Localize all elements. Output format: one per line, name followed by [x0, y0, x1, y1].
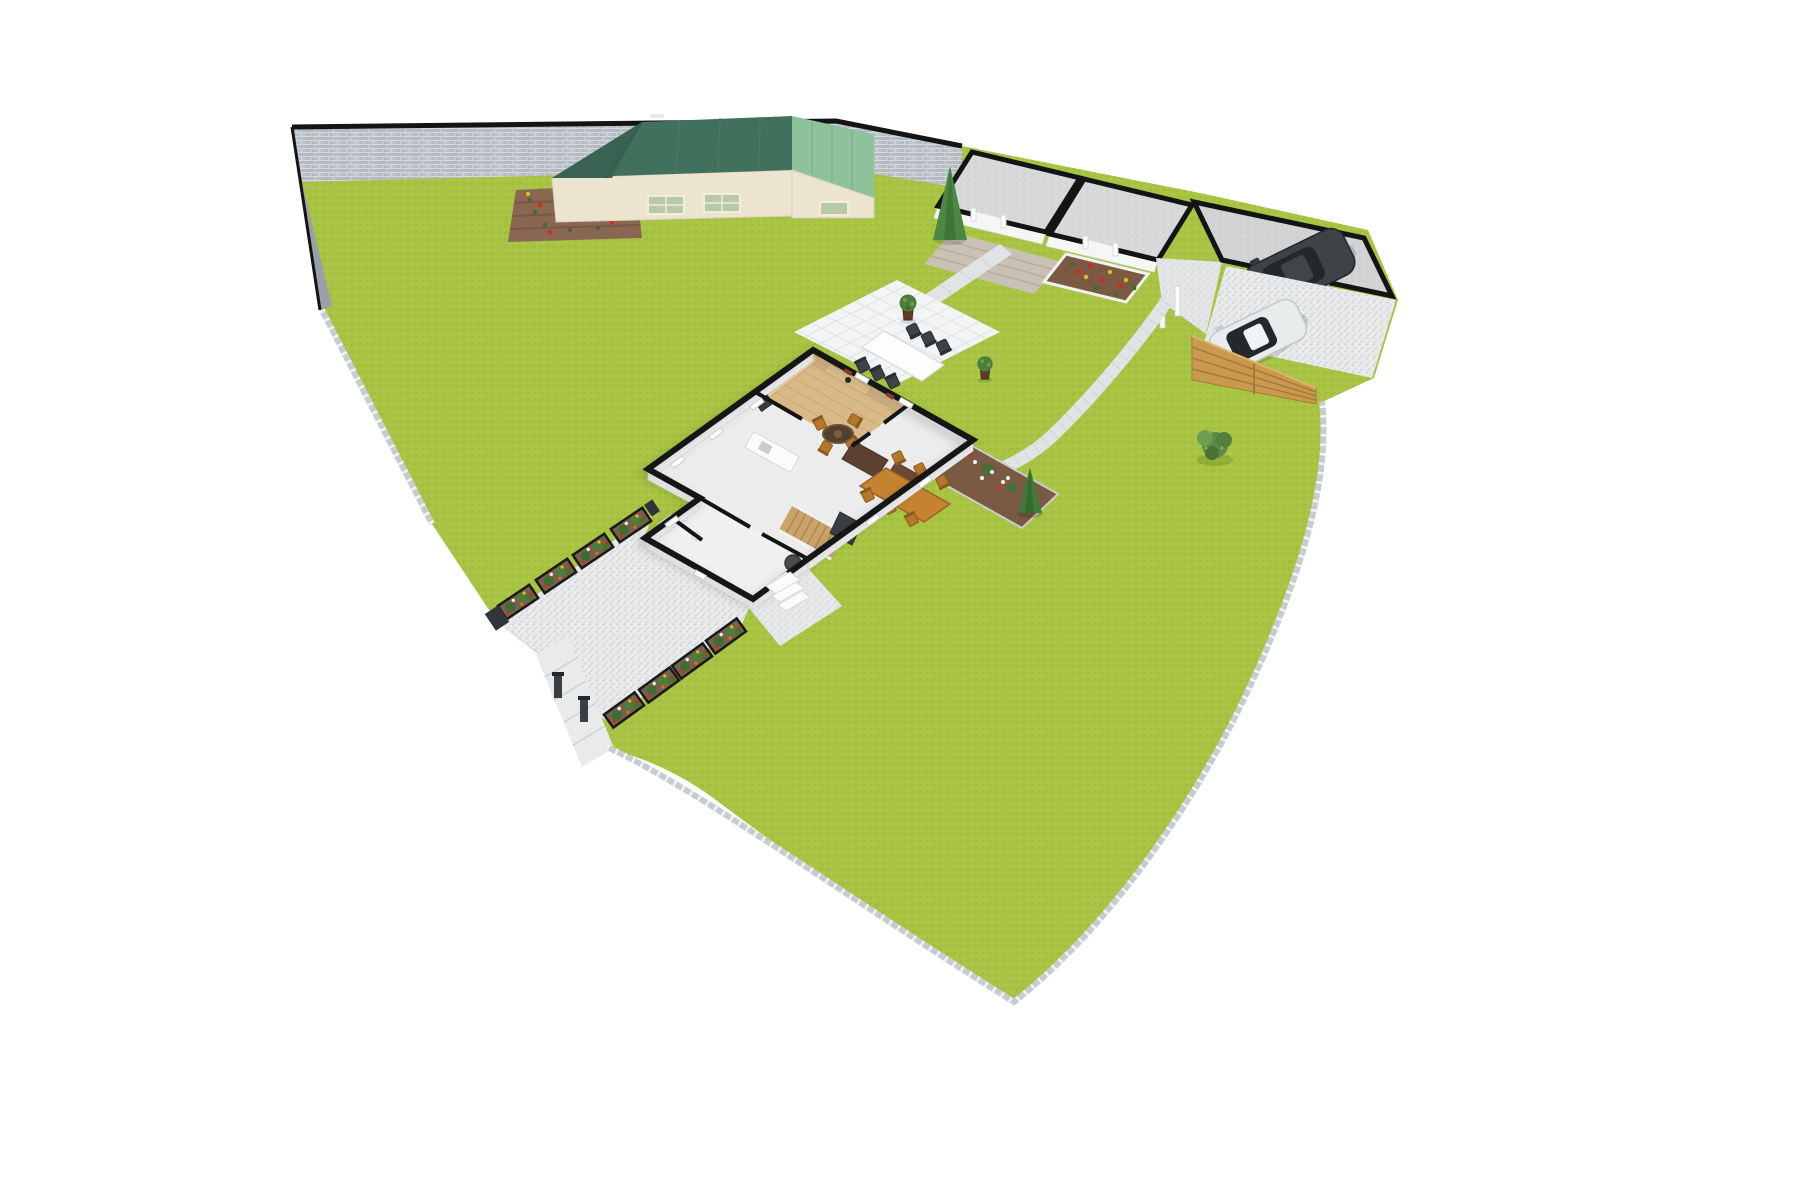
- shed-annex-window: [820, 202, 848, 215]
- site-plan: [0, 0, 1806, 1200]
- screenshot: [0, 0, 1806, 1200]
- garden-bush: [1197, 430, 1233, 466]
- shed-ridge-vent: [650, 114, 664, 118]
- shed-window: [648, 196, 684, 214]
- cooktop: [845, 377, 851, 383]
- round-table-center: [834, 430, 842, 438]
- shed-window: [704, 194, 740, 212]
